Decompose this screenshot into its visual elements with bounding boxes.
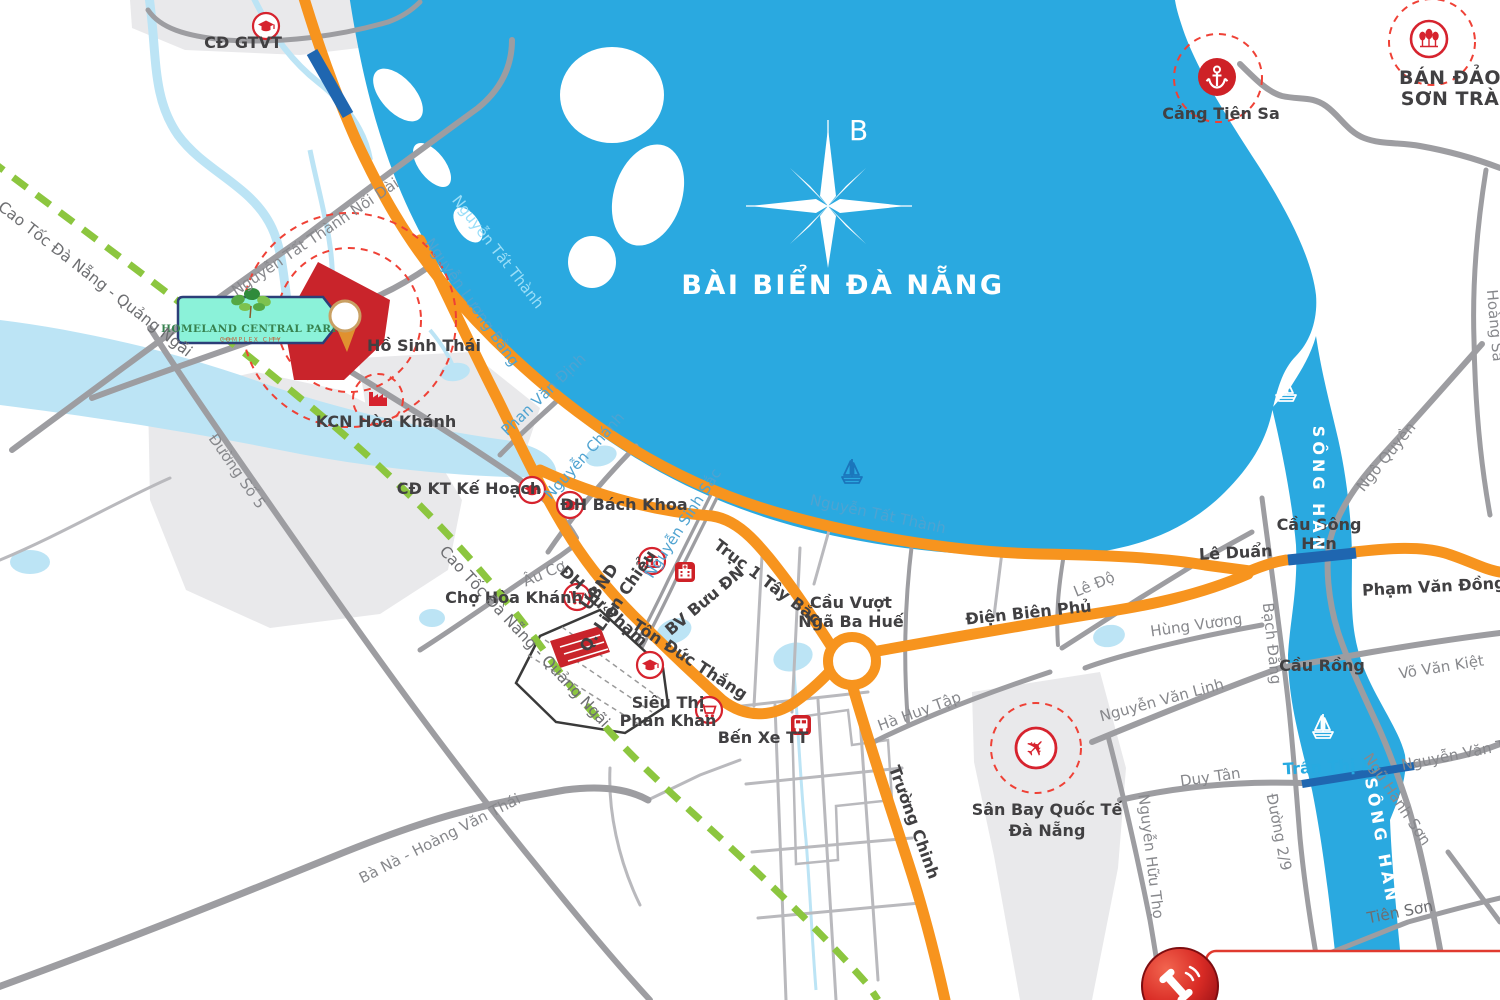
poi-label-cd-kt: CĐ KT Kế Hoạch <box>397 479 541 498</box>
project-logo: HOMELAND CENTRAL PARK COMPLEX CITY <box>161 288 341 344</box>
danang-location-map: ✈ <box>0 0 1500 1000</box>
river-label-song-han-north: SÔNG HÀN <box>1309 426 1328 554</box>
bridge-label-nga-ba-hue-1: Cầu Vượt <box>810 593 892 612</box>
trees-icon-son-tra <box>1411 21 1447 57</box>
poi-label-sieu-thi-2: Phan Khan <box>620 711 717 730</box>
project-name: HOMELAND CENTRAL PARK <box>161 323 341 335</box>
poi-label-ho-sinh-thai: Hồ Sinh Thái <box>367 336 481 355</box>
poi-label-san-bay-1: Sân Bay Quốc Tế <box>972 800 1124 819</box>
sea-name-label: BÀI BIỂN ĐÀ NẴNG <box>681 264 1004 301</box>
poi-label-san-bay-2: Đà Nẵng <box>1009 821 1086 840</box>
map-canvas: ✈ <box>0 0 1500 1000</box>
poi-label-ben-xe: Bến Xe TT <box>718 728 809 747</box>
hospital-icon-bv-buu-dn <box>675 562 695 582</box>
poi-label-cang-tien-sa: Cảng Tiên Sa <box>1162 104 1279 123</box>
project-subtitle: COMPLEX CITY <box>220 337 282 344</box>
roundabout-nga-ba-hue <box>828 637 876 685</box>
university-icon-su-pham <box>637 652 663 678</box>
poi-label-ban-dao-2: SƠN TRÀ <box>1401 87 1500 110</box>
anchor-icon-cang-tien-sa <box>1198 58 1236 96</box>
compass-north-label: B <box>849 114 868 147</box>
road-label-le-duan: Lê Duẩn <box>1199 541 1273 564</box>
hotline-contact-box[interactable] <box>1142 948 1500 1000</box>
poi-label-ban-dao-1: BÁN ĐẢO <box>1399 64 1500 89</box>
poi-label-kcn: KCN Hòa Khánh <box>316 412 457 431</box>
airplane-icon-san-bay <box>1016 728 1056 768</box>
poi-label-sieu-thi-1: Siêu Thị <box>632 693 705 712</box>
poi-label-cd-gtvt: CĐ GTVT <box>204 33 282 52</box>
bridge-label-cau-rong: Cầu Rồng <box>1279 656 1365 675</box>
poi-label-cho-hoa-khanh: Chợ Hòa Khánh <box>445 588 583 607</box>
poi-label-bach-khoa: ĐH Bách Khoa <box>560 495 687 514</box>
